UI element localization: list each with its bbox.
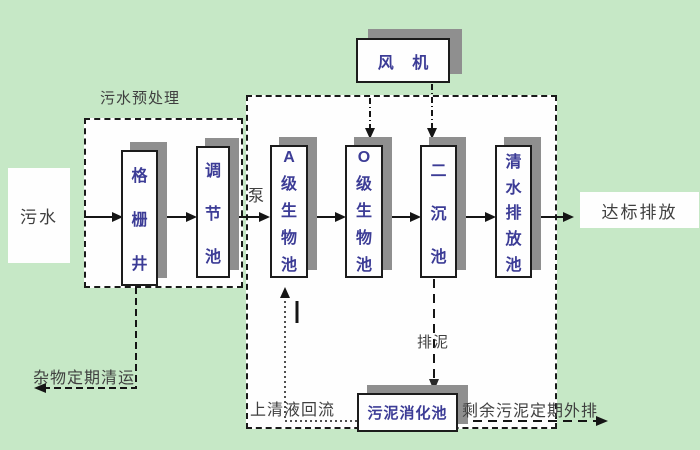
node-secondary-clarifier: 二沉池	[420, 145, 457, 278]
arrow-cleanwater-to-effluent	[532, 212, 574, 222]
influent-label: 污水	[20, 203, 58, 228]
arrow-influent-to-gridwell	[84, 212, 123, 222]
a-bio-tank-label: A级生物池	[272, 147, 306, 276]
air-line-fan-to-clarifier	[427, 84, 437, 139]
sludge-discharge-label: 排泥	[417, 331, 449, 352]
debris-removal-label: 杂物定期清运	[33, 364, 135, 388]
excess-sludge-out-label: 剩余污泥定期外排	[462, 397, 598, 421]
air-line-fan-to-o-tank	[365, 98, 375, 139]
arrow-clarifier-to-cleanwater	[458, 212, 496, 222]
node-a-bio-tank: A级生物池	[270, 145, 308, 278]
node-clean-water-tank: 清水排放池	[495, 145, 532, 278]
arrow-gridwell-to-regulating	[158, 212, 197, 222]
clean-water-tank-label: 清水排放池	[497, 147, 530, 276]
sludge-digester-label: 污泥消化池	[359, 395, 456, 430]
arrow-a-to-o-tank	[308, 212, 346, 222]
node-regulating-tank: 调节池	[196, 146, 230, 278]
node-grid-well: 格栅井	[121, 150, 158, 286]
regulating-tank-label: 调节池	[198, 148, 228, 276]
node-sludge-digester: 污泥消化池	[357, 393, 458, 432]
influent-box: 污水	[8, 168, 70, 263]
arrow-o-to-clarifier	[383, 212, 421, 222]
fan-label: 风 机	[358, 40, 448, 81]
arrow-pump-to-a-tank	[231, 212, 270, 222]
supernatant-return-label: 上清液回流	[250, 396, 335, 420]
node-fan: 风 机	[356, 38, 450, 83]
grid-well-label: 格栅井	[123, 152, 156, 284]
o-bio-tank-label: O级生物池	[347, 147, 381, 276]
wastewater-process-flow-diagram: 格栅井 调节池 A级生物池 O级生物池 二沉池 清水排放池 风 机 污泥消化池 …	[0, 0, 700, 450]
pump-label: 泵	[248, 182, 265, 206]
secondary-clarifier-label: 二沉池	[422, 147, 455, 276]
pretreatment-region-label: 污水预处理	[100, 87, 180, 108]
effluent-box: 达标排放	[580, 192, 699, 228]
node-o-bio-tank: O级生物池	[345, 145, 383, 278]
effluent-label: 达标排放	[602, 198, 678, 223]
